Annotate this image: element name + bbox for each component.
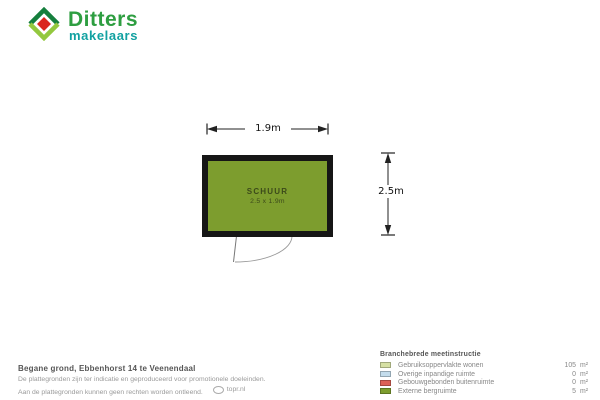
dimension-width-label: 1.9m: [245, 122, 291, 135]
legend-value: 0: [550, 379, 576, 386]
legend-label: Gebouwgebonden buitenruimte: [398, 379, 546, 386]
legend-value: 105: [550, 362, 576, 369]
legend-row: Externe bergruimte 5 m²: [380, 387, 593, 396]
legend-swatch-buitenruimte: [380, 380, 391, 386]
legend-swatch-bergruimte: [380, 388, 391, 394]
legend-label: Gebruiksoppervlakte wonen: [398, 362, 546, 369]
room-size-label: 2.5 x 1.9m: [250, 198, 285, 205]
legend-header: Branchebrede meetinstructie: [380, 351, 593, 358]
room-name-label: SCHUUR: [247, 187, 288, 196]
legend-swatch-wonen: [380, 362, 391, 368]
legend-unit: m²: [580, 362, 593, 369]
dimension-height-label: 2.5m: [376, 185, 406, 198]
measurement-legend: Branchebrede meetinstructie Gebruiksoppe…: [380, 351, 593, 396]
legend-row: Gebruiksoppervlakte wonen 105 m²: [380, 361, 593, 370]
legend-swatch-inpandig: [380, 371, 391, 377]
legend-label: Externe bergruimte: [398, 388, 546, 395]
legend-value: 5: [550, 388, 576, 395]
credit: topr.nl: [213, 385, 246, 395]
disclaimer-line-2: Aan de plattegronden kunnen geen rechten…: [18, 385, 363, 398]
credit-text: topr.nl: [227, 385, 246, 395]
legend-unit: m²: [580, 371, 593, 378]
legend-unit: m²: [580, 388, 593, 395]
legend-unit: m²: [580, 379, 593, 386]
disclaimer-line-2-text: Aan de plattegronden kunnen geen rechten…: [18, 389, 203, 396]
floorplan-page: Ditters makelaars SCHUUR: [0, 0, 600, 400]
legend-value: 0: [550, 371, 576, 378]
legend-label: Overige inpandige ruimte: [398, 371, 546, 378]
disclaimer-line-1: De plattegronden zijn ter indicatie en g…: [18, 375, 363, 385]
footer-text-block: Begane grond, Ebbenhorst 14 te Veenendaa…: [18, 364, 363, 398]
room-schuur: SCHUUR 2.5 x 1.9m: [202, 155, 333, 237]
legend-row: Gebouwgebonden buitenruimte 0 m²: [380, 378, 593, 387]
floorplan-title: Begane grond, Ebbenhorst 14 te Veenendaa…: [18, 364, 363, 373]
legend-row: Overige inpandige ruimte 0 m²: [380, 370, 593, 379]
topr-logo-icon: [213, 386, 224, 394]
